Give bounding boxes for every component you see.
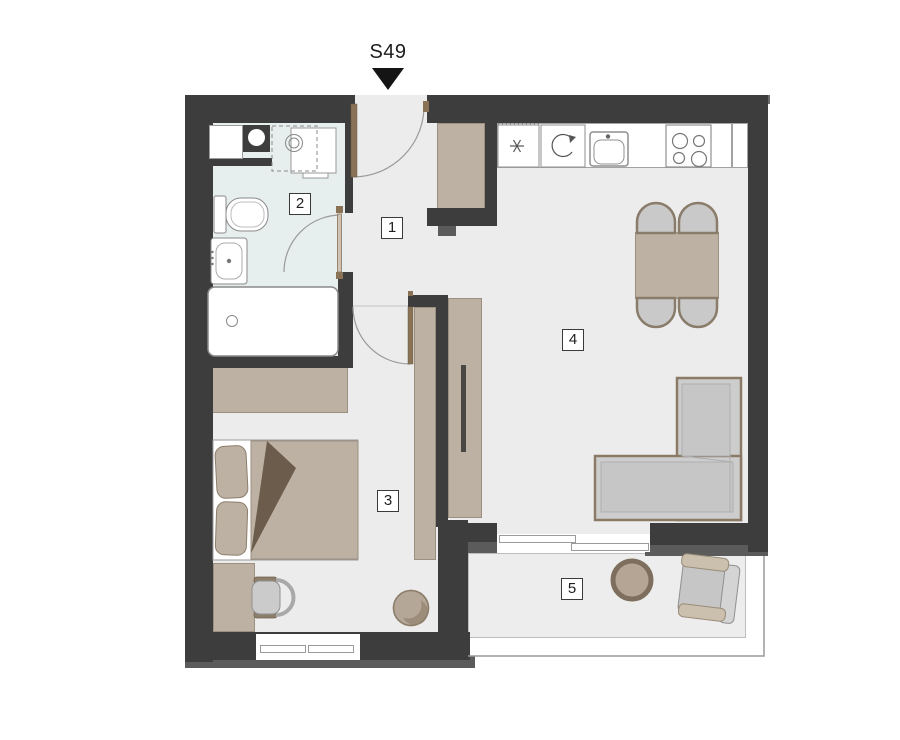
bathroom-door-arc (284, 215, 341, 272)
floor-plan: 1 2 3 4 5 S49 (0, 0, 900, 740)
room-label-balcony: 5 (561, 578, 583, 600)
toilet (214, 196, 268, 233)
dining-chairs (637, 203, 717, 327)
plan-vector-overlay (0, 0, 900, 740)
pouf (394, 591, 429, 626)
room-label-hall: 1 (381, 217, 403, 239)
room-number: 5 (568, 580, 576, 597)
unit-marker-icon (372, 68, 404, 90)
pillow (215, 501, 248, 555)
washing-machine (272, 126, 336, 178)
room-label-bathroom: 2 (289, 193, 311, 215)
fridge-freezer (498, 125, 539, 167)
entrance-door-arc (354, 106, 424, 177)
kitchen-sink (590, 132, 628, 166)
pillow (215, 445, 249, 499)
room-number: 1 (388, 219, 396, 236)
dining-chair (679, 203, 717, 233)
bathtub (208, 287, 338, 356)
entrance-door-leaf (351, 104, 357, 177)
dining-chair (679, 298, 717, 327)
room-number: 2 (296, 195, 304, 212)
room-number: 3 (384, 492, 392, 509)
dining-chair (637, 298, 675, 327)
door-jamb (336, 272, 343, 279)
oven (541, 125, 585, 167)
unit-label: S49 (348, 41, 428, 64)
door-jamb (423, 101, 429, 112)
room-number: 4 (569, 331, 577, 348)
bathroom-sink (211, 238, 247, 284)
room-label-bedroom: 3 (377, 490, 399, 512)
door-jamb (336, 206, 343, 213)
room-label-living-kitchen: 4 (562, 329, 584, 351)
bedroom-door-arc (353, 307, 410, 364)
dining-chair (637, 203, 675, 233)
bed (213, 440, 358, 560)
door-jamb (408, 291, 413, 296)
balcony-armchair (675, 553, 741, 624)
bedroom-door-leaf (408, 307, 413, 364)
balcony-table (613, 561, 651, 599)
cooktop (666, 125, 711, 167)
sofa (595, 378, 741, 520)
desk-chair (252, 577, 294, 618)
bathroom-door-leaf (338, 214, 342, 272)
